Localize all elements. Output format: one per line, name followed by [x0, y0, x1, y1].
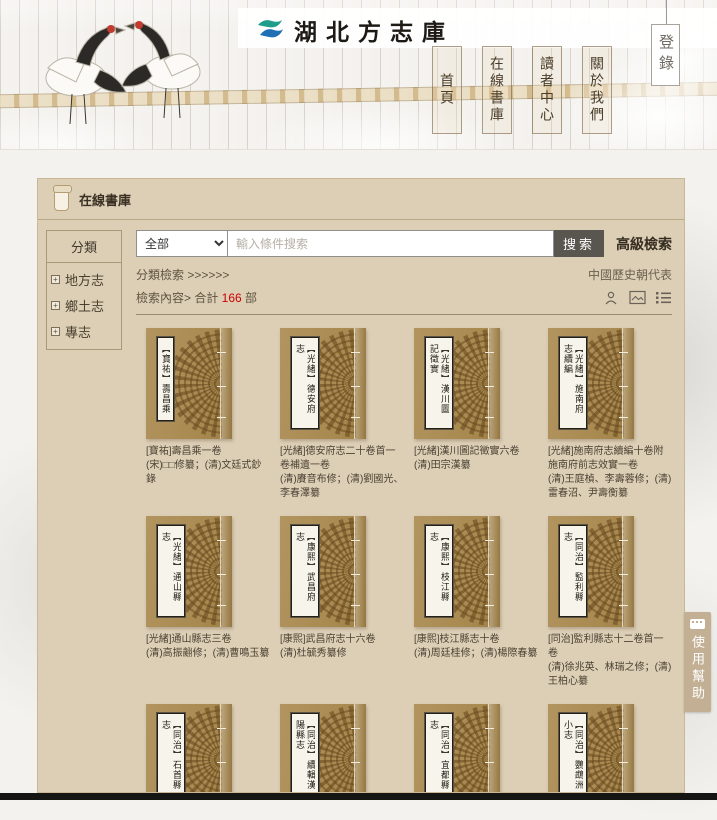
category-search-breadcrumb[interactable]: 分類檢索 >>>>>> — [136, 266, 229, 283]
book-author-line: (宋)□□修纂；(清)文廷式鈔錄 — [146, 459, 270, 487]
section-divider — [136, 314, 672, 315]
book-title-line[interactable]: [光緒]施南府志續編十卷附施南府前志效實一卷 — [548, 445, 672, 473]
book-card: 【康熙】武昌府志 [康熙]武昌府志十六卷 (清)杜毓秀纂修 — [280, 516, 404, 689]
book-cover-title: 【光緒】德安府志 — [291, 337, 319, 429]
book-title-line[interactable]: [光緒]通山縣志三卷 — [146, 633, 270, 647]
footer-edge — [0, 793, 717, 800]
book-cover-title: 【同治】石首縣志 — [157, 713, 185, 793]
book-caption: [寶祐]壽昌乘一卷 (宋)□□修纂；(清)文廷式鈔錄 — [146, 445, 270, 487]
book-cover[interactable]: 【同治】續輯漢陽縣志 — [280, 704, 366, 793]
book-card: 【光緒】施南府志續編 [光緒]施南府志續編十卷附施南府前志效實一卷 (清)王庭楨… — [548, 328, 672, 501]
book-author-line: (清)高振翽修；(清)曹鳴玉纂 — [146, 647, 270, 661]
book-cover-title: 【同治】監利縣志 — [559, 525, 587, 617]
search-field-select[interactable]: 全部 — [136, 230, 228, 257]
book-title-line[interactable]: [同治]監利縣志十二卷首一卷 — [548, 633, 672, 661]
book-card: 【同治】石首縣志 [同治]石首縣志八卷 (清)朱榮實修；(清)傅如煦纂 — [146, 704, 270, 793]
cover-binding — [220, 328, 232, 439]
view-toggle-icons — [603, 290, 672, 305]
site-logo[interactable]: 湖北方志庫 — [256, 13, 454, 47]
book-cover[interactable]: 【光緒】德安府志 — [280, 328, 366, 439]
book-card: 【康熙】枝江縣志 [康熙]枝江縣志十卷 (清)周廷桂修；(清)楊際春纂 — [414, 516, 538, 689]
search-bar: 全部 搜索 高級檢索 — [136, 230, 672, 257]
book-cover-title: 【光緒】漢川圖記徵實 — [425, 337, 453, 429]
cover-binding — [622, 704, 634, 793]
book-card: 【同治】續輯漢陽縣志 [同治]續輯漢陽縣志二十八卷 (清)黃式度等修；(清)王柏… — [280, 704, 404, 793]
book-cover[interactable]: 【康熙】武昌府志 — [280, 516, 366, 627]
login-button[interactable]: 登錄 — [651, 24, 680, 86]
book-caption: [康熙]武昌府志十六卷 (清)杜毓秀纂修 — [280, 633, 404, 661]
site-title: 湖北方志庫 — [294, 13, 454, 47]
book-cover-title: 【光緒】施南府志續編 — [559, 337, 587, 429]
category-label: 地方志 — [65, 270, 104, 289]
list-view-icon[interactable] — [655, 290, 672, 305]
book-author-line: (清)王庭楨、李壽蓉修；(清)雷春沼、尹壽衡纂 — [548, 473, 672, 501]
book-title-line[interactable]: [光緒]漢川圖記徵實六卷 — [414, 445, 538, 459]
book-cover-title: 【同治】鸚鵡洲小志 — [559, 713, 587, 793]
expand-plus-icon[interactable]: + — [51, 301, 60, 310]
section-title: 在線書庫 — [79, 190, 131, 209]
book-cover[interactable]: 【寶祐】壽昌乘 — [146, 328, 232, 439]
book-card: 【寶祐】壽昌乘 [寶祐]壽昌乘一卷 (宋)□□修纂；(清)文廷式鈔錄 — [146, 328, 270, 501]
book-cover-title: 【同治】續輯漢陽縣志 — [291, 713, 319, 793]
result-count-text: 檢索內容> 合計 166 部 — [136, 289, 257, 306]
header-banner: 湖北方志庫 首頁 在線書庫 讀者中心 關於我們 登錄 — [0, 0, 717, 150]
book-title-line[interactable]: [康熙]武昌府志十六卷 — [280, 633, 404, 647]
book-grid: 【寶祐】壽昌乘 [寶祐]壽昌乘一卷 (宋)□□修纂；(清)文廷式鈔錄 【光緒】德… — [146, 328, 672, 793]
book-card: 【光緒】通山縣志 [光緒]通山縣志三卷 (清)高振翽修；(清)曹鳴玉纂 — [146, 516, 270, 689]
book-caption: [光緒]漢川圖記徵實六卷 (清)田宗漢纂 — [414, 445, 538, 473]
search-button[interactable]: 搜索 — [554, 230, 604, 257]
nav-item[interactable]: 讀者中心 — [532, 46, 562, 134]
result-prefix: 檢索內容> 合計 — [136, 291, 218, 305]
nav-item[interactable]: 在線書庫 — [482, 46, 512, 134]
keyboard-icon — [690, 619, 705, 629]
book-cover-title: 【光緒】通山縣志 — [157, 525, 185, 617]
book-cover[interactable]: 【光緒】施南府志續編 — [548, 328, 634, 439]
book-card: 【同治】監利縣志 [同治]監利縣志十二卷首一卷 (清)徐兆英、林瑞之修；(清)王… — [548, 516, 672, 689]
book-author-line: (清)周廷桂修；(清)楊際春纂 — [414, 647, 538, 661]
section-header: 在線書庫 — [38, 179, 684, 220]
advanced-search-link[interactable]: 高級檢索 — [616, 234, 672, 254]
book-cover-title: 【寶祐】壽昌乘 — [157, 337, 174, 421]
book-cover[interactable]: 【同治】石首縣志 — [146, 704, 232, 793]
logo-icon — [256, 17, 284, 43]
book-cover-title: 【同治】宜都縣志 — [425, 713, 453, 793]
image-view-icon[interactable] — [629, 290, 646, 305]
book-card: 【同治】宜都縣志 [同治]宜都縣志四卷首一卷末一卷 (清)崔培元、朱甘霖修；(清… — [414, 704, 538, 793]
book-cover[interactable]: 【同治】宜都縣志 — [414, 704, 500, 793]
nav-item[interactable]: 關於我們 — [582, 46, 612, 134]
book-cover[interactable]: 【同治】監利縣志 — [548, 516, 634, 627]
book-card: 【同治】鸚鵡洲小志 [同治]鸚鵡洲小志四卷首一卷 (清)胡鳳丹纂 — [548, 704, 672, 793]
cover-binding — [354, 328, 366, 439]
book-cover[interactable]: 【光緒】漢川圖記徵實 — [414, 328, 500, 439]
book-title-line[interactable]: [康熙]枝江縣志十卷 — [414, 633, 538, 647]
expand-plus-icon[interactable]: + — [51, 275, 60, 284]
book-card: 【光緒】德安府志 [光緒]德安府志二十卷首一卷補遺一卷 (清)賡音布修；(清)劉… — [280, 328, 404, 501]
cranes-illustration — [14, 6, 234, 146]
sidebar-category-item[interactable]: + 專志 — [47, 315, 121, 349]
book-author-line: (清)田宗漢纂 — [414, 459, 538, 473]
result-unit: 部 — [245, 291, 257, 305]
book-title-line[interactable]: [光緒]德安府志二十卷首一卷補遺一卷 — [280, 445, 404, 473]
book-card: 【光緒】漢川圖記徵實 [光緒]漢川圖記徵實六卷 (清)田宗漢纂 — [414, 328, 538, 501]
search-input[interactable] — [228, 230, 554, 257]
login-hanger-line — [666, 0, 667, 24]
cover-binding — [354, 516, 366, 627]
help-tab[interactable]: 使用幫助 — [684, 612, 711, 712]
book-cover[interactable]: 【同治】鸚鵡洲小志 — [548, 704, 634, 793]
cover-binding — [220, 516, 232, 627]
cover-binding — [488, 704, 500, 793]
book-caption: [光緒]通山縣志三卷 (清)高振翽修；(清)曹鳴玉纂 — [146, 633, 270, 661]
main-panel: 在線書庫 分類 + 地方志 + 鄉土志 + — [37, 178, 685, 793]
cover-binding — [488, 516, 500, 627]
category-label: 專志 — [65, 322, 91, 341]
book-cover-title: 【康熙】武昌府志 — [291, 525, 319, 617]
scroll-icon — [54, 187, 69, 211]
result-count: 166 — [218, 291, 245, 305]
sidebar-category-item[interactable]: + 鄉土志 — [47, 289, 121, 315]
nav-item[interactable]: 首頁 — [432, 46, 462, 134]
category-label: 鄉土志 — [65, 296, 104, 315]
book-author-line: (清)賡音布修；(清)劉國光、李春澤纂 — [280, 473, 404, 501]
expand-plus-icon[interactable]: + — [51, 327, 60, 336]
sidebar-items: + 地方志 + 鄉土志 + 專志 — [47, 263, 121, 349]
book-cover-title: 【康熙】枝江縣志 — [425, 525, 453, 617]
book-caption: [光緒]施南府志續編十卷附施南府前志效實一卷 (清)王庭楨、李壽蓉修；(清)雷春… — [548, 445, 672, 501]
sidebar-category-item[interactable]: + 地方志 — [47, 263, 121, 289]
book-cover[interactable]: 【康熙】枝江縣志 — [414, 516, 500, 627]
book-caption: [康熙]枝江縣志十卷 (清)周廷桂修；(清)楊際春纂 — [414, 633, 538, 661]
category-sidebar: 分類 + 地方志 + 鄉土志 + 專志 — [46, 230, 122, 350]
cover-binding — [622, 328, 634, 439]
sidebar-title: 分類 — [47, 231, 121, 263]
book-title-line[interactable]: [寶祐]壽昌乘一卷 — [146, 445, 270, 459]
person-search-icon[interactable] — [603, 290, 620, 305]
book-caption: [同治]監利縣志十二卷首一卷 (清)徐兆英、林瑞之修；(清)王柏心纂 — [548, 633, 672, 689]
cover-binding — [354, 704, 366, 793]
book-cover[interactable]: 【光緒】通山縣志 — [146, 516, 232, 627]
cover-medallion-pattern — [169, 328, 222, 439]
cover-binding — [488, 328, 500, 439]
book-caption: [光緒]德安府志二十卷首一卷補遺一卷 (清)賡音布修；(清)劉國光、李春澤纂 — [280, 445, 404, 501]
dynasty-table-link[interactable]: 中國歷史朝代表 — [588, 266, 672, 283]
book-author-line: (清)杜毓秀纂修 — [280, 647, 404, 661]
cover-binding — [622, 516, 634, 627]
help-tab-label: 使用幫助 — [688, 635, 707, 703]
cover-binding — [220, 704, 232, 793]
book-author-line: (清)徐兆英、林瑞之修；(清)王柏心纂 — [548, 661, 672, 689]
